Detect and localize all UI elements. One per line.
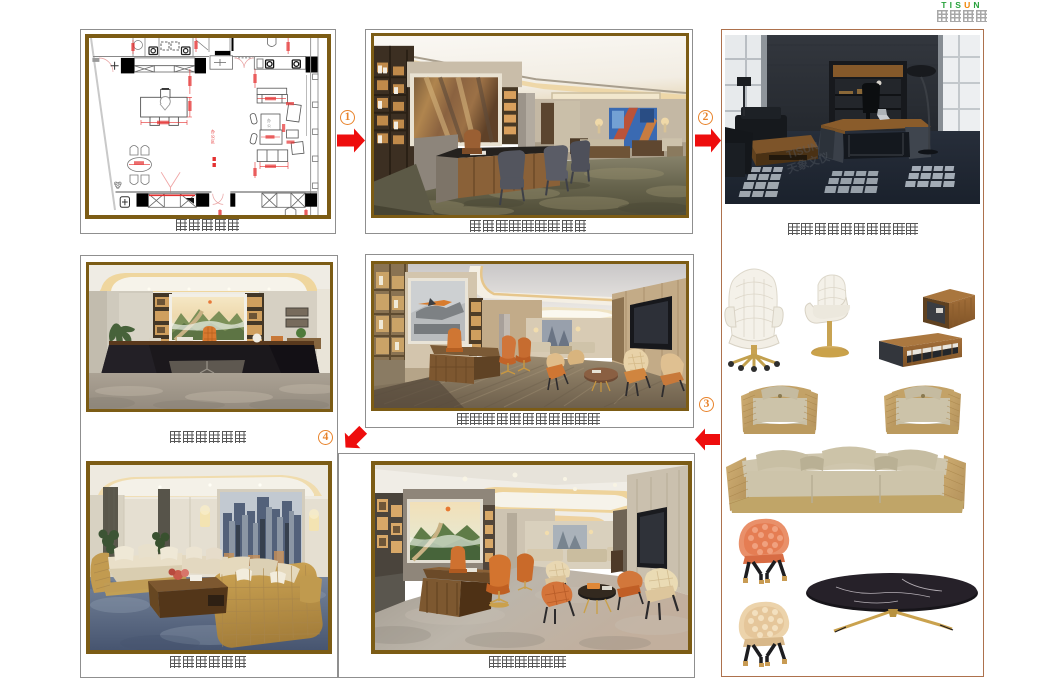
- svg-text:公: 公: [267, 123, 271, 128]
- svg-text:区: 区: [211, 139, 215, 144]
